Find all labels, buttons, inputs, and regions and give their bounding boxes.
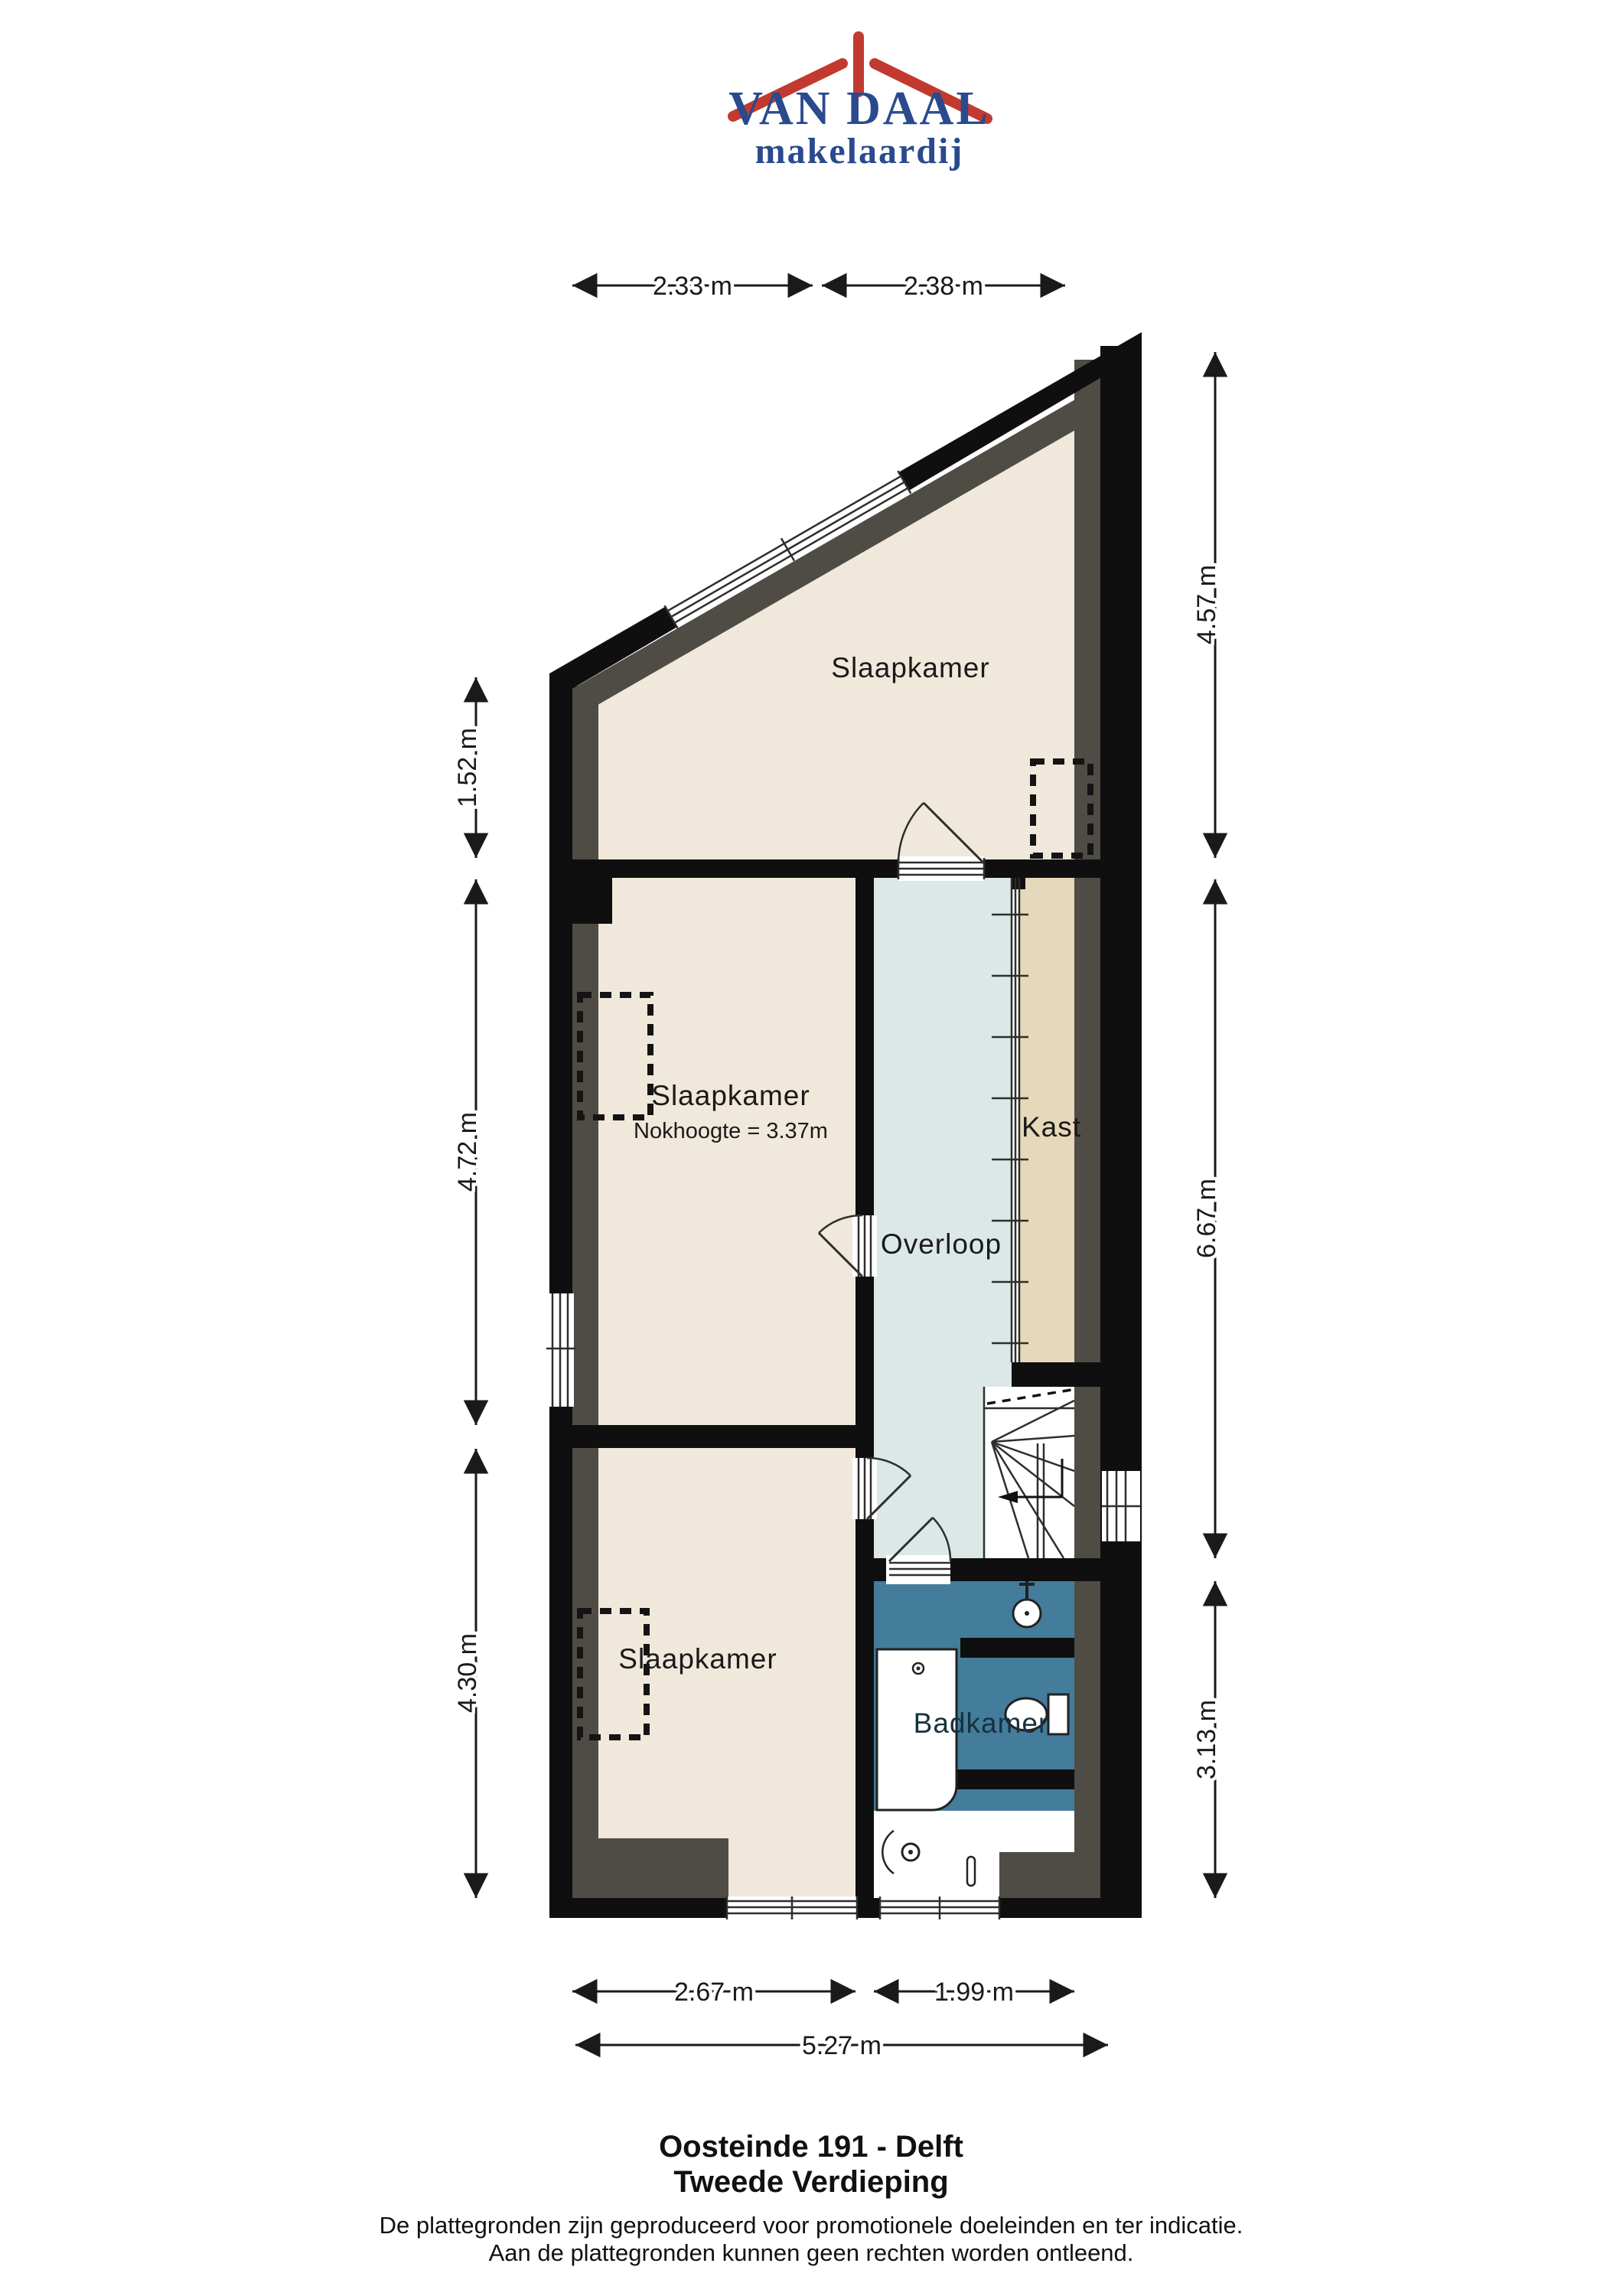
footer: Oosteinde 191 - Delft Tweede Verdieping …: [380, 2130, 1243, 2266]
wall-toilet-stub-top: [960, 1638, 1074, 1658]
dim-right-1: 4.57 m: [1192, 565, 1221, 644]
window-stairs-right: [1102, 1471, 1140, 1541]
footer-disclaimer-2: Aan de plattegronden kunnen geen rechten…: [489, 2239, 1134, 2266]
dim-left-2: 4.72 m: [453, 1112, 482, 1192]
wall-mid-bottom-bedroom: [572, 1425, 855, 1448]
slope-bottom-right: [999, 1852, 1074, 1898]
footer-floor: Tweede Verdieping: [673, 2165, 948, 2199]
wall-divider-vertical: [855, 878, 874, 1898]
label-overloop: Overloop: [881, 1228, 1002, 1260]
shower-faucet: [967, 1857, 975, 1886]
dim-top-1: 2.33 m: [653, 272, 732, 301]
dim-right-3: 3.13 m: [1192, 1700, 1221, 1779]
footer-address: Oosteinde 191 - Delft: [659, 2130, 963, 2164]
label-badkamer: Badkamer: [914, 1707, 1049, 1739]
wall-left-pilaster: [572, 878, 612, 924]
floor-slaapkamer-middle: [572, 878, 855, 1425]
dim-left-3: 4.30 m: [453, 1633, 482, 1713]
footer-disclaimer-1: De plattegronden zijn geproduceerd voor …: [380, 2212, 1243, 2239]
label-slaapkamer-middle: Slaapkamer: [651, 1080, 810, 1111]
wall-kast-bottom: [1012, 1362, 1100, 1387]
dim-right-2: 6.67 m: [1192, 1179, 1221, 1258]
wall-top-bedroom-bottom: [572, 859, 1100, 878]
floorplan-canvas: VAN DAAL makelaardij: [0, 0, 1623, 2296]
wall-toilet-stub-bottom: [949, 1769, 1074, 1789]
window-bottom-right: [880, 1896, 999, 1919]
logo-brand: VAN DAAL: [728, 83, 990, 135]
label-slaapkamer-top: Slaapkamer: [831, 652, 989, 683]
logo: VAN DAAL makelaardij: [728, 37, 990, 171]
logo-subtitle: makelaardij: [755, 131, 964, 171]
dim-bottom-1: 2.67 m: [674, 1978, 754, 2007]
wall-right: [1100, 346, 1142, 1918]
dim-bottom-2: 1.99 m: [934, 1978, 1014, 2007]
dim-top-2: 2.38 m: [904, 272, 983, 301]
label-kast: Kast: [1022, 1111, 1081, 1143]
window-left-wall: [546, 1293, 575, 1407]
dim-bottom-3: 5.27 m: [802, 2031, 882, 2060]
label-slaapkamer-bottom: Slaapkamer: [618, 1643, 777, 1675]
label-nokhoogte: Nokhoogte = 3.37m: [634, 1119, 828, 1143]
dim-left-1: 1.52 m: [453, 728, 482, 807]
slope-bottom-left: [572, 1838, 728, 1898]
window-bottom-left: [727, 1896, 857, 1919]
floor-stairs: [984, 1387, 1074, 1558]
